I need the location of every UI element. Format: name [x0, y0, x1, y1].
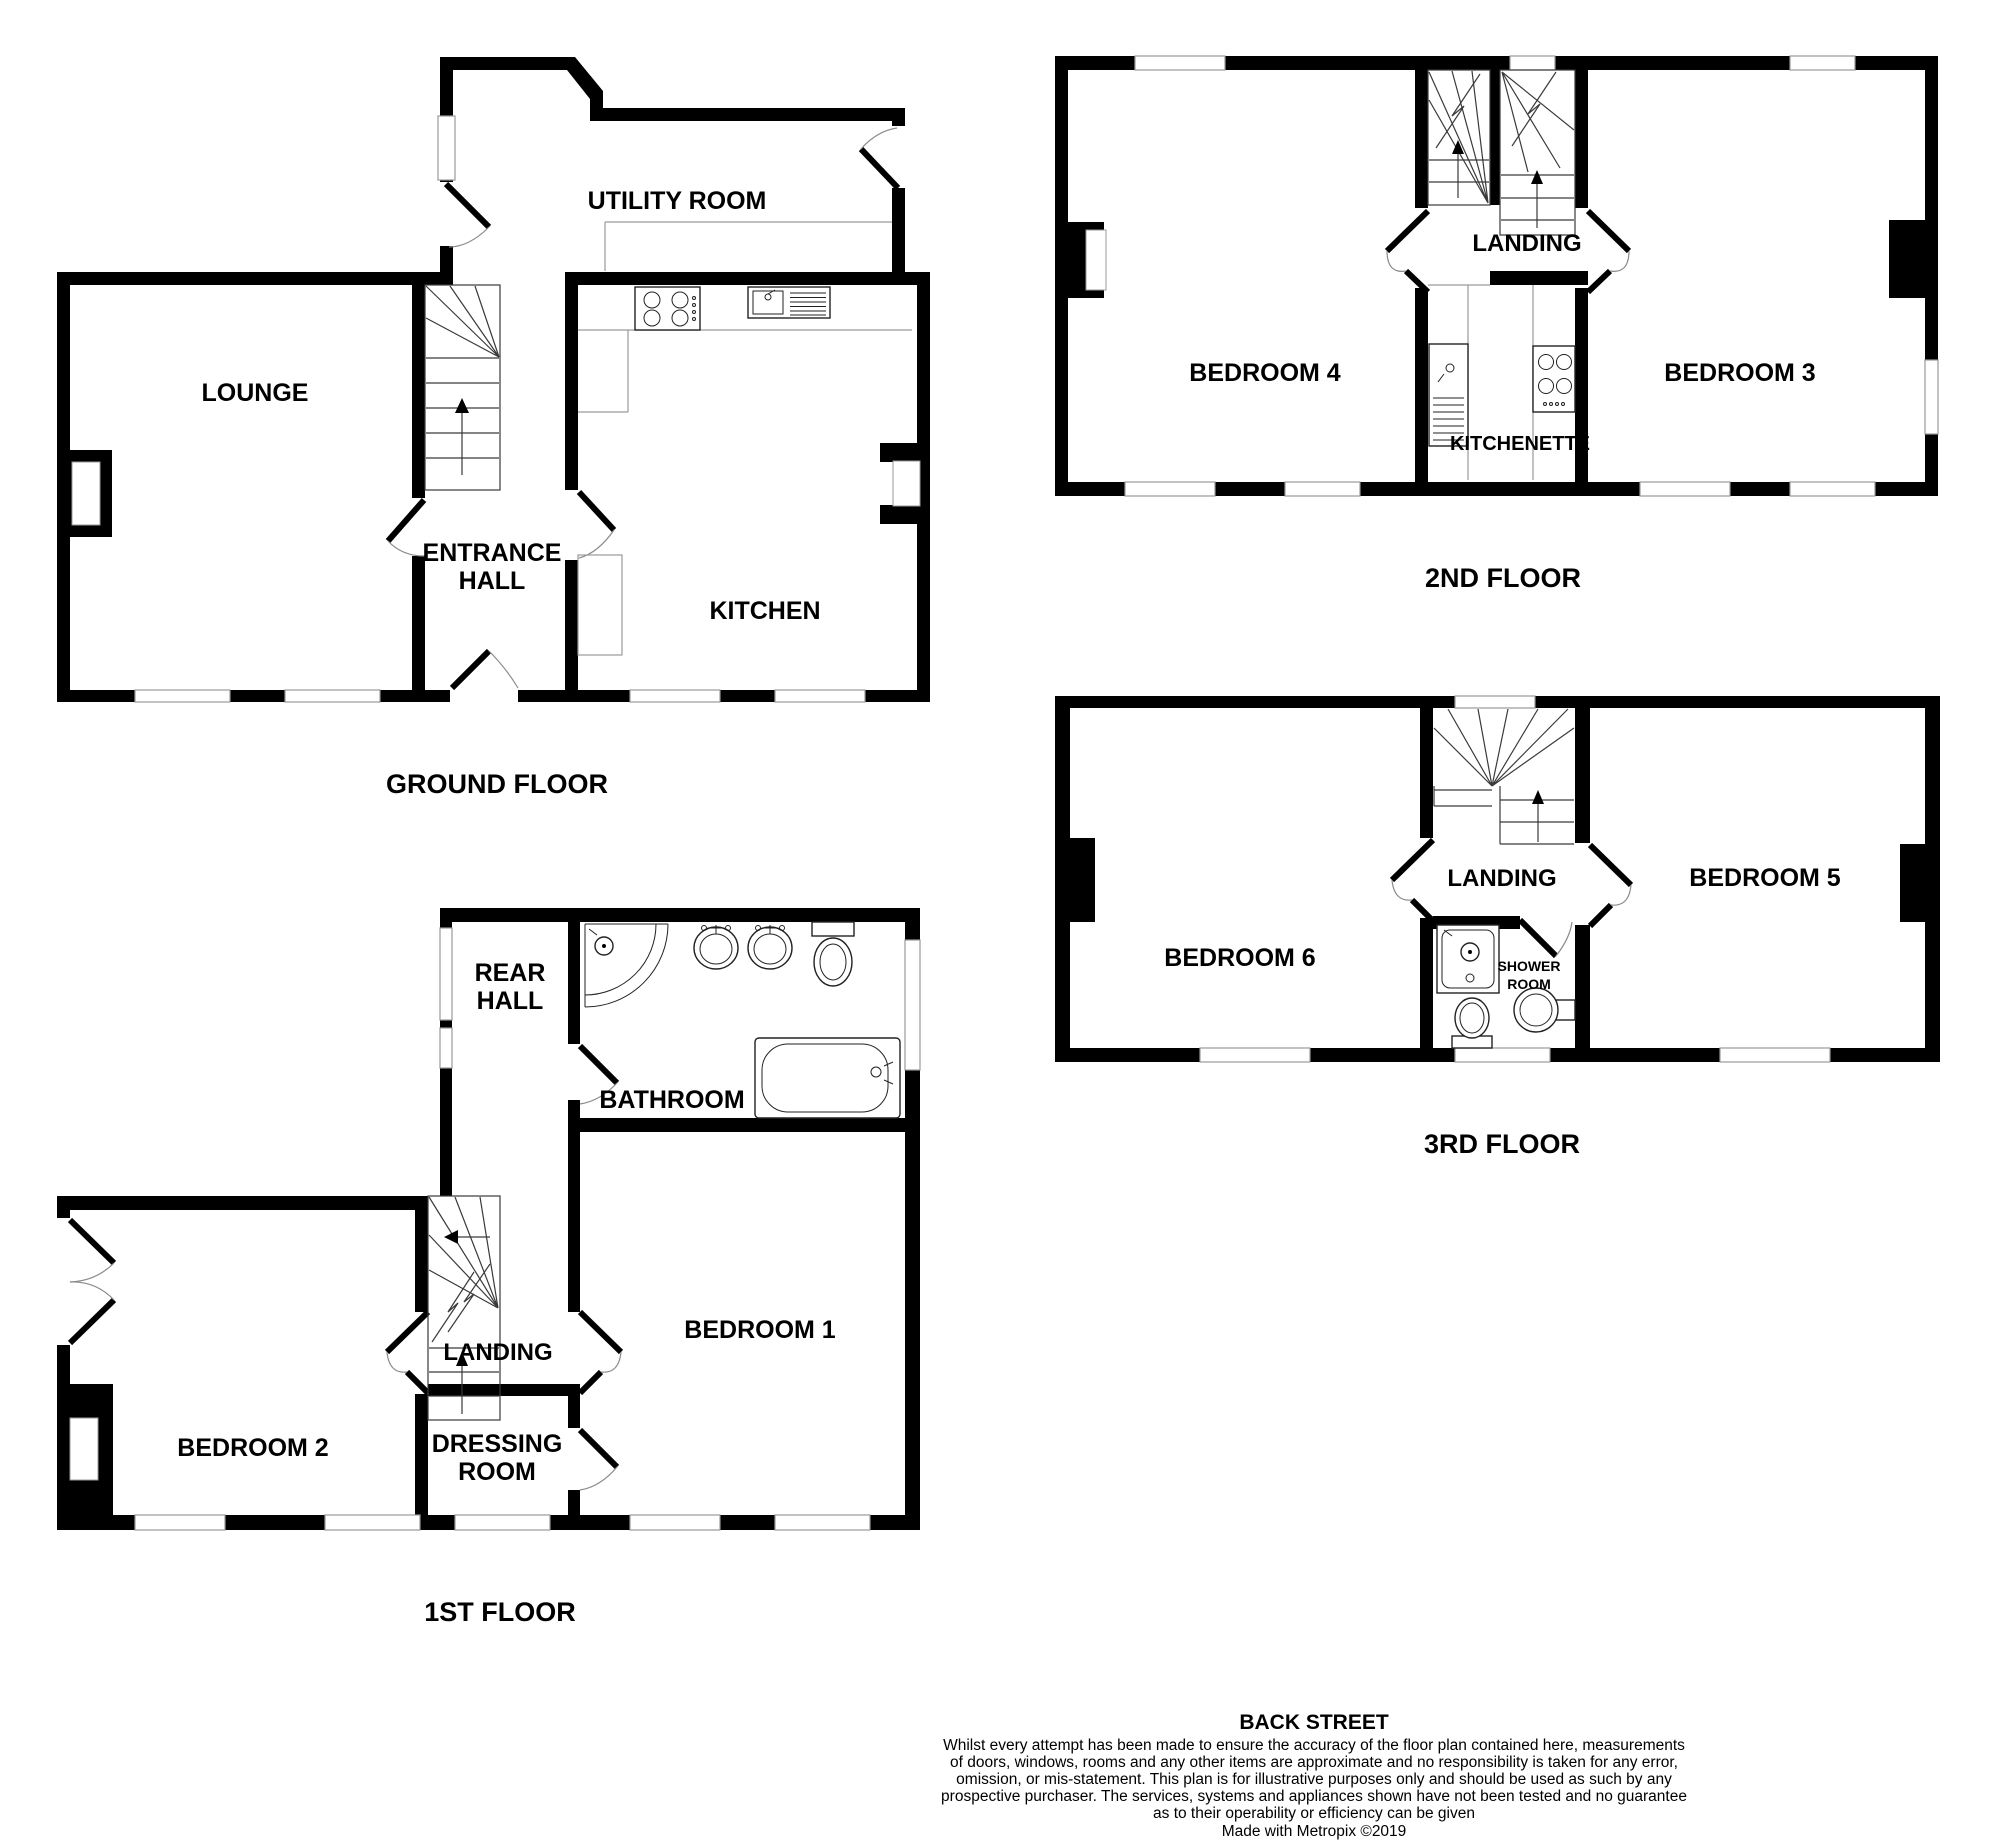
label-landing-2nd: LANDING [1472, 230, 1581, 257]
disclaimer-line-5: as to their operability or efficiency ca… [1153, 1805, 1475, 1822]
label-shower-room-1: SHOWER [1498, 958, 1561, 974]
label-utility-room: UTILITY ROOM [588, 187, 767, 215]
sink-icon [748, 287, 830, 318]
third-shower-fixtures [1437, 925, 1575, 1048]
dressing-door-leaf [580, 1430, 617, 1467]
label-shower-room-2: ROOM [1507, 976, 1551, 992]
label-rear-hall-1: REAR [475, 959, 546, 987]
footer: BACK STREET Whilst every attempt has bee… [941, 1711, 1687, 1840]
label-ground-floor: GROUND FLOOR [386, 769, 608, 799]
label-1st-floor: 1ST FLOOR [424, 1597, 576, 1627]
label-kitchen: KITCHEN [709, 597, 820, 625]
shower-tray-icon [1437, 925, 1499, 993]
bath-icon [755, 1038, 900, 1118]
label-dressing-1: DRESSING [432, 1430, 563, 1458]
front-door-leaf [452, 651, 489, 688]
floorplan-page: LOUNGE ENTRANCE HALL KITCHEN UTILITY ROO… [0, 0, 2000, 1846]
floorplan-canvas: LOUNGE ENTRANCE HALL KITCHEN UTILITY ROO… [0, 0, 2000, 1846]
third-staircase [1434, 709, 1574, 844]
second-walls [1055, 56, 1938, 496]
disclaimer-line-2: of doors, windows, rooms and any other i… [950, 1754, 1678, 1771]
first-floor-plan: REAR HALL BATHROOM BEDROOM 2 LANDING BED… [56, 908, 920, 1627]
label-lounge: LOUNGE [202, 379, 309, 407]
french-door-leaf-bottom [70, 1300, 114, 1343]
stair-up-arrow-3rd [1532, 790, 1544, 804]
ground-staircase [425, 285, 500, 490]
label-bathroom: BATHROOM [599, 1086, 744, 1114]
toilet-icon-3rd [1452, 998, 1492, 1048]
lounge-door-leaf [388, 500, 424, 541]
stair-up-arrow [455, 398, 469, 413]
ground-floor-plan: LOUNGE ENTRANCE HALL KITCHEN UTILITY ROO… [57, 57, 930, 799]
label-bedroom4: BEDROOM 4 [1189, 359, 1341, 387]
second-staircase [1428, 70, 1575, 235]
first-doors [56, 1046, 621, 1490]
bathroom-door-leaf [580, 1046, 617, 1083]
label-dressing-2: ROOM [458, 1458, 536, 1486]
toilet-icon [812, 922, 854, 986]
ground-counters [578, 222, 912, 655]
label-3rd-floor: 3RD FLOOR [1424, 1129, 1580, 1159]
second-floor-plan: BEDROOM 4 BEDROOM 3 LANDING KITCHENETTE … [1055, 56, 1938, 593]
ground-kitchen-fixtures [635, 287, 830, 330]
disclaimer-line-1: Whilst every attempt has been made to en… [943, 1737, 1685, 1754]
third-floor-plan: BEDROOM 6 LANDING BEDROOM 5 SHOWER ROOM … [1055, 696, 1940, 1159]
french-door-leaf-top [70, 1220, 114, 1263]
label-landing-1st: LANDING [443, 1339, 552, 1366]
round-basin-icon [1514, 988, 1575, 1032]
kitchenette-sink-icon [1429, 344, 1468, 446]
label-rear-hall-2: HALL [477, 987, 544, 1015]
hob-icon [635, 287, 700, 330]
basin-icon [694, 925, 738, 969]
shower-room-door-leaf [1520, 920, 1556, 956]
label-bedroom6: BEDROOM 6 [1164, 944, 1315, 972]
kitchen-door-leaf [579, 492, 614, 530]
corner-shower-icon [585, 924, 668, 1007]
label-entrance-hall-1: ENTRANCE [423, 539, 562, 567]
label-2nd-floor: 2ND FLOOR [1425, 563, 1581, 593]
kitchenette-hob-icon [1533, 346, 1575, 412]
label-bedroom5: BEDROOM 5 [1689, 864, 1841, 892]
label-entrance-hall-2: HALL [459, 567, 526, 595]
disclaimer-line-4: prospective purchaser. The services, sys… [941, 1788, 1687, 1805]
label-kitchenette: KITCHENETTE [1450, 433, 1590, 455]
label-bedroom1: BEDROOM 1 [684, 1316, 836, 1344]
label-bedroom3: BEDROOM 3 [1664, 359, 1815, 387]
disclaimer-line-3: omission, or mis-statement. This plan is… [956, 1771, 1672, 1788]
street-title: BACK STREET [1239, 1711, 1389, 1734]
label-bedroom2: BEDROOM 2 [177, 1434, 328, 1462]
metropix-credit: Made with Metropix ©2019 [1222, 1823, 1407, 1840]
basin-icon-2 [748, 925, 792, 969]
label-landing-3rd: LANDING [1447, 865, 1556, 892]
